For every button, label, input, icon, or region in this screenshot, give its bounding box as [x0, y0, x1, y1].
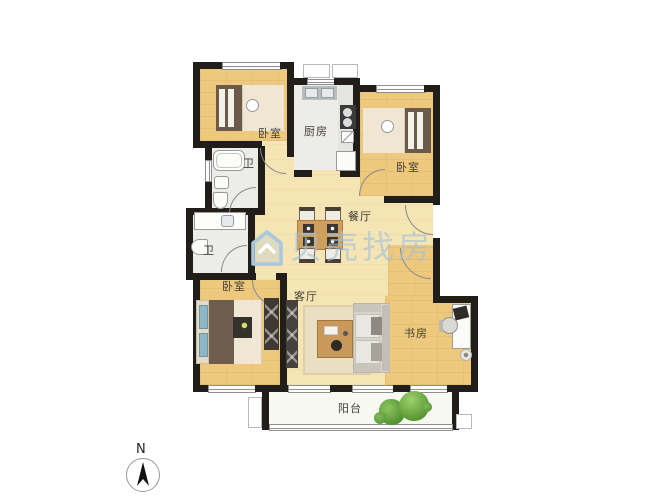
- sofa-pillow: [371, 317, 382, 335]
- exterior-ledge: [248, 397, 262, 428]
- bedroom-window: [222, 62, 282, 70]
- wall: [280, 62, 294, 69]
- sink-basin: [321, 88, 334, 98]
- bed: [209, 300, 234, 364]
- table-decor: [331, 340, 342, 351]
- wall: [340, 170, 353, 177]
- wall: [294, 78, 308, 85]
- wall: [294, 170, 312, 177]
- wall: [262, 388, 269, 430]
- wall: [255, 385, 289, 392]
- bath-sink: [214, 176, 229, 189]
- pillow: [408, 112, 414, 149]
- plant-leaf: [422, 402, 432, 412]
- table-cup: [343, 331, 348, 336]
- kitchen-window: [307, 79, 335, 85]
- stove-burner: [343, 118, 352, 127]
- tv-stand-panel: [287, 348, 297, 366]
- bed-decor: [246, 99, 259, 112]
- wall: [330, 385, 353, 392]
- room-label-study: 书房: [404, 328, 428, 339]
- sofa-armrest: [354, 304, 381, 312]
- wall: [193, 385, 209, 392]
- wall: [471, 296, 478, 392]
- wall: [433, 296, 478, 303]
- watermark-text: 贝壳找房: [290, 231, 434, 263]
- tv-stand-panel: [287, 326, 297, 344]
- compass-north-label: N: [136, 443, 146, 456]
- room-label-bath-upper: 卫: [243, 158, 255, 169]
- ac-unit: [332, 64, 358, 78]
- wall: [424, 85, 440, 92]
- balcony-railing-window: [269, 424, 453, 431]
- wardrobe-door: [265, 302, 278, 322]
- bath-window: [205, 160, 212, 182]
- bedroom-window: [376, 85, 426, 93]
- floorplan-page: 卧室 厨房 卧室 卫 卫 餐厅 卧室 客厅 书房 阳台 贝壳找房 N: [0, 0, 667, 500]
- desk-chair-back: [439, 320, 443, 332]
- wall: [276, 273, 287, 280]
- sofa-back: [382, 305, 390, 371]
- wall: [360, 85, 377, 92]
- sink-basin: [305, 88, 318, 98]
- tv-stand-panel: [287, 304, 297, 322]
- pillow: [199, 333, 208, 357]
- room-label-bath-lower: 卫: [203, 245, 215, 256]
- bed-decor: [381, 120, 394, 133]
- stove-burner: [343, 108, 352, 117]
- cutting-board: [341, 131, 354, 143]
- room-label-dining: 餐厅: [348, 211, 372, 222]
- pillow: [417, 112, 423, 149]
- room-label-bedroom-top-left: 卧室: [258, 128, 282, 139]
- wall: [433, 238, 440, 303]
- wall: [433, 85, 440, 205]
- room-label-bedroom-bottom-left: 卧室: [222, 281, 246, 292]
- wardrobe-door: [265, 326, 278, 346]
- room-label-kitchen: 厨房: [304, 126, 328, 137]
- balcony-door-window: [352, 385, 394, 393]
- bed-tray: [233, 317, 252, 338]
- pillow: [219, 89, 225, 127]
- room-label-living: 客厅: [294, 291, 318, 302]
- sofa-armrest: [354, 364, 381, 372]
- room-label-balcony: 阳台: [338, 403, 362, 414]
- pillow: [199, 305, 208, 329]
- wall: [193, 62, 223, 69]
- room-label-bedroom-top-right: 卧室: [396, 162, 420, 173]
- sofa-pillow: [371, 343, 382, 361]
- wall: [384, 196, 440, 203]
- bath-counter: [194, 212, 246, 230]
- wall: [334, 78, 360, 85]
- balcony-door-window: [288, 385, 331, 393]
- floor-plant-small: [460, 349, 472, 361]
- ac-unit: [303, 64, 330, 78]
- pillow: [228, 89, 234, 127]
- plant-leaf: [374, 412, 386, 424]
- desk-chair: [441, 317, 458, 334]
- sink-basin: [221, 215, 234, 227]
- wall: [193, 62, 200, 148]
- bedroom-window: [208, 385, 256, 393]
- wall: [447, 385, 478, 392]
- bathtub-inner: [216, 153, 242, 168]
- watermark-logo-icon: [250, 228, 284, 268]
- wall: [287, 62, 294, 157]
- exterior-ledge: [456, 414, 472, 429]
- wall: [193, 141, 262, 148]
- compass-needle-icon: [126, 458, 160, 492]
- toilet: [213, 192, 228, 209]
- wall: [186, 273, 256, 280]
- table-paper: [324, 326, 338, 335]
- fridge: [336, 151, 356, 171]
